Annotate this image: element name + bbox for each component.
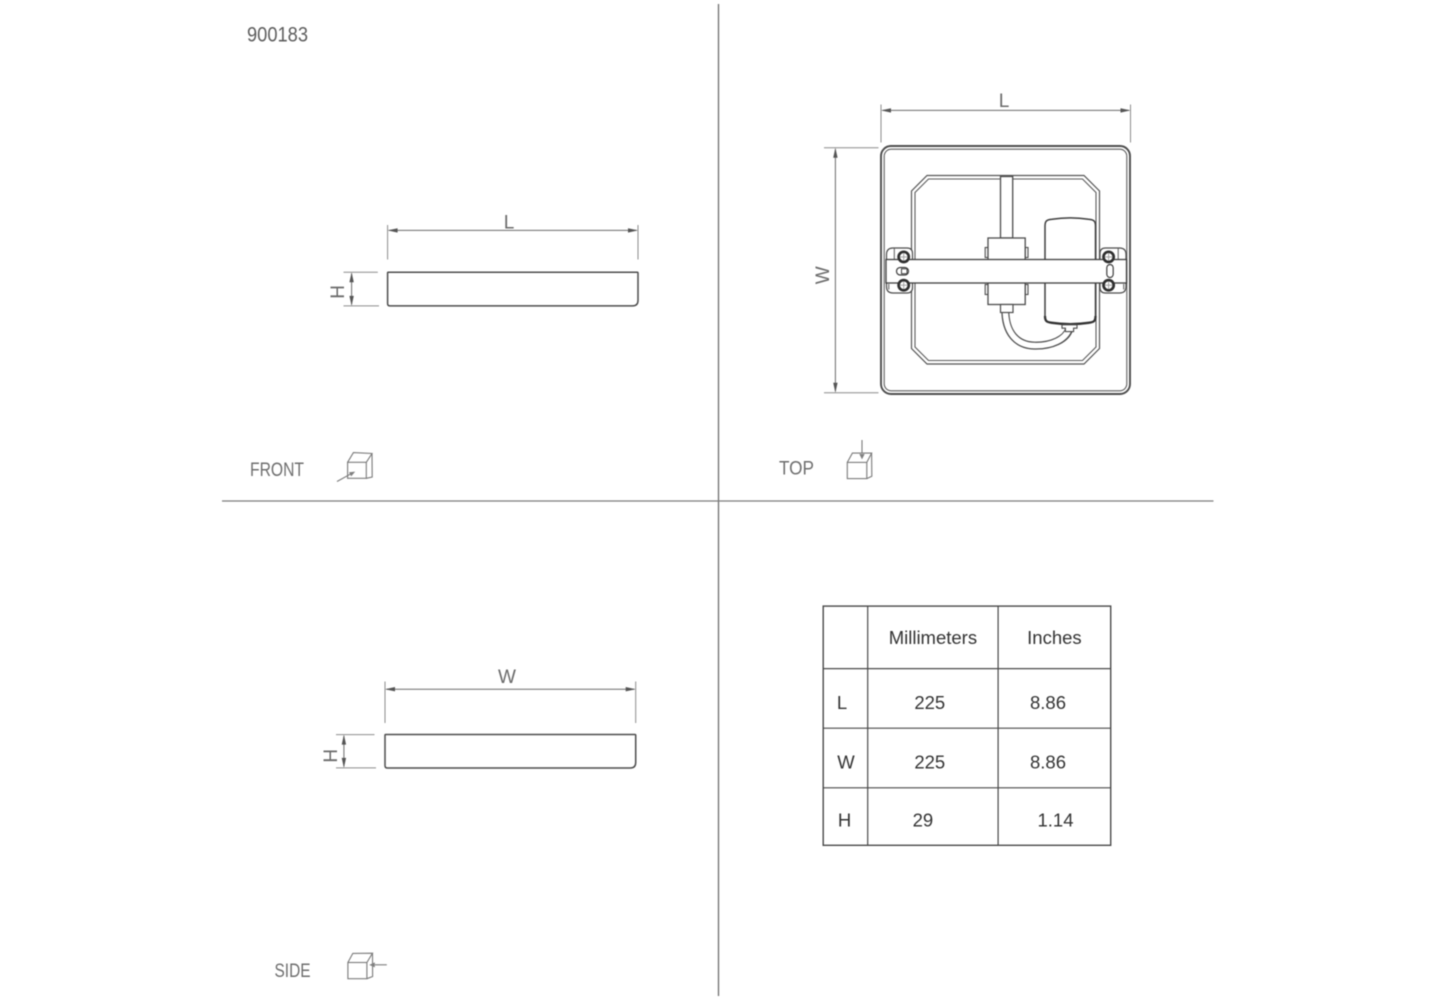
svg-text:H: H	[328, 285, 349, 299]
svg-text:1.14: 1.14	[1037, 810, 1073, 831]
svg-text:TOP: TOP	[779, 458, 814, 480]
svg-text:8.86: 8.86	[1030, 692, 1066, 713]
svg-text:L: L	[999, 91, 1010, 112]
svg-text:Inches: Inches	[1027, 627, 1082, 648]
svg-text:225: 225	[914, 692, 945, 713]
svg-text:FRONT: FRONT	[250, 459, 304, 481]
svg-text:225: 225	[914, 752, 945, 773]
svg-text:Millimeters: Millimeters	[889, 627, 977, 648]
svg-text:H: H	[838, 810, 851, 831]
svg-text:8.86: 8.86	[1030, 752, 1066, 773]
svg-text:W: W	[498, 667, 516, 688]
svg-text:L: L	[504, 213, 515, 234]
svg-text:W: W	[837, 752, 855, 773]
svg-text:900183: 900183	[247, 22, 308, 46]
svg-text:SIDE: SIDE	[275, 960, 311, 982]
svg-text:H: H	[321, 749, 342, 763]
svg-text:L: L	[837, 692, 847, 713]
svg-text:W: W	[813, 266, 834, 284]
svg-text:29: 29	[913, 810, 934, 831]
